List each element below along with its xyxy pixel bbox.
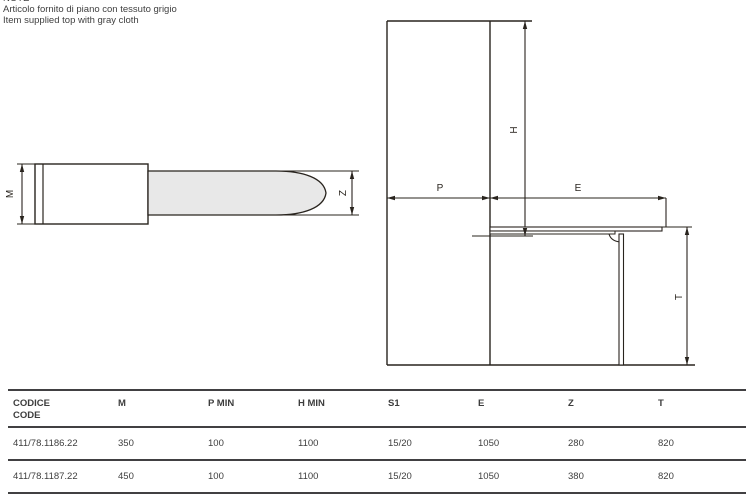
table-row: 411/78.1187.22 450 100 1100 15/20 1050 3…: [8, 460, 746, 493]
cell-p-min: 100: [203, 427, 293, 460]
cell-s1: 15/20: [383, 460, 473, 493]
cell-t: 820: [653, 427, 746, 460]
table-header-row: CODICE CODE M P MIN H MIN S1 E Z T: [8, 390, 746, 427]
dim-label-t: T: [673, 289, 687, 305]
header-m: M: [113, 390, 203, 427]
top-view-diagram: [0, 150, 380, 245]
board-rail: [490, 231, 615, 234]
cell-code: 411/78.1187.22: [8, 460, 113, 493]
header-z: Z: [563, 390, 653, 427]
cell-s1: 15/20: [383, 427, 473, 460]
header-codice: CODICE CODE: [8, 390, 113, 427]
cell-z: 280: [563, 427, 653, 460]
header-p-min: P MIN: [203, 390, 293, 427]
leg: [619, 234, 624, 365]
header-s1: S1: [383, 390, 473, 427]
cell-code: 411/78.1186.22: [8, 427, 113, 460]
cell-e: 1050: [473, 460, 563, 493]
dim-label-p: P: [430, 182, 450, 196]
catalog-spec-page: NOTE Articolo fornito di piano con tessu…: [0, 0, 754, 496]
dim-label-z: Z: [337, 185, 351, 201]
cell-m: 450: [113, 460, 203, 493]
cell-h-min: 1100: [293, 427, 383, 460]
note-block: NOTE Articolo fornito di piano con tessu…: [3, 0, 177, 26]
dim-label-h: H: [508, 122, 522, 138]
cell-m: 350: [113, 427, 203, 460]
header-codice-line1: CODICE: [13, 398, 113, 410]
cell-t: 820: [653, 460, 746, 493]
top-view-drawing: M Z: [0, 150, 380, 245]
header-codice-line2: CODE: [13, 410, 113, 422]
header-h-min: H MIN: [293, 390, 383, 427]
board-shape: [148, 171, 326, 215]
cell-p-min: 100: [203, 460, 293, 493]
header-e: E: [473, 390, 563, 427]
header-t: T: [653, 390, 746, 427]
note-line-italian: Articolo fornito di piano con tessuto gr…: [3, 4, 177, 15]
note-line-english: Item supplied top with gray cloth: [3, 15, 177, 26]
side-view-drawing: P E H T: [380, 14, 715, 374]
cell-e: 1050: [473, 427, 563, 460]
spec-table: CODICE CODE M P MIN H MIN S1 E Z T 411/7…: [8, 389, 746, 494]
board-top-slab: [490, 227, 662, 231]
dim-label-e: E: [568, 182, 588, 196]
dim-label-m: M: [4, 186, 18, 202]
cell-h-min: 1100: [293, 460, 383, 493]
table-row: 411/78.1186.22 350 100 1100 15/20 1050 2…: [8, 427, 746, 460]
cell-z: 380: [563, 460, 653, 493]
